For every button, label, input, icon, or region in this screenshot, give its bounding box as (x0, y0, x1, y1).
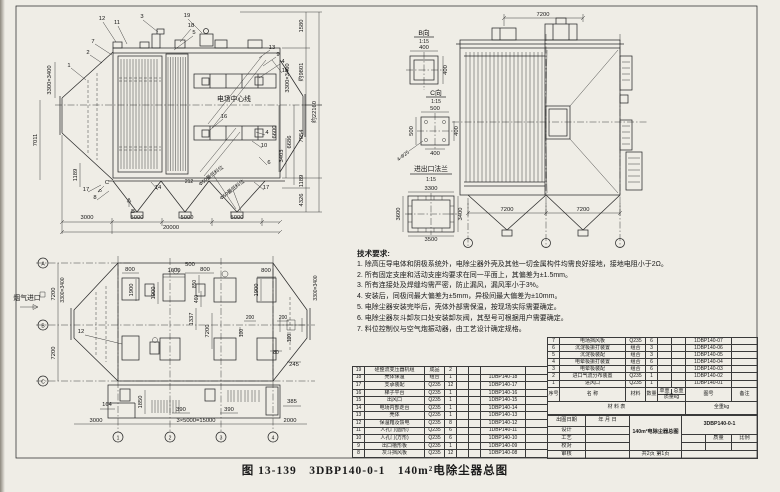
cell-code: 1DBP140-01 (686, 380, 732, 387)
cell-code: 1DBP140-08 (481, 450, 526, 458)
cell-empty (672, 359, 686, 366)
cell-empty (469, 374, 481, 382)
cell-material: Q235 (425, 382, 445, 390)
cell-empty (457, 435, 469, 443)
cell-name: 灰斗挡风板 (365, 450, 425, 458)
cell-empty (469, 450, 481, 458)
parts-table-right: 7 电场挡风板 Q235 6 1DBP140-07 6 沉淀极振打装置 组合 3… (547, 337, 758, 415)
cell-name: 电晕极装配 (560, 366, 626, 373)
callout: 6 (267, 160, 270, 166)
cell-material: Q235 (425, 404, 445, 412)
cell-empty (469, 404, 481, 412)
parts-row: 8 灰斗挡风板 Q235 12 1DBP140-08 (353, 450, 548, 458)
cell-material: 组合 (626, 366, 646, 373)
header-material: 材料 (626, 387, 646, 401)
cell-code: 1DBP140-03 (686, 366, 732, 373)
cell-qty: 6 (646, 366, 658, 373)
header-name: 名 称 (560, 387, 626, 401)
cell-no: 10 (353, 435, 365, 443)
dim-label: 390 (224, 407, 234, 413)
cell-empty (658, 338, 672, 345)
cell-no: 4 (548, 359, 560, 366)
tech-requirement-item: 1. 除高压导电体和阴极系统外，电除尘器外壳及其他一切金属构件均需良好接地，接地… (357, 260, 755, 271)
cell-empty (526, 427, 548, 435)
cell-empty (658, 366, 672, 373)
parts-row: 9 出口槽形板 Q235 1 1DBP140-09 (353, 442, 548, 450)
parts-table-left: 19 硅整流变压器机组 成品 2 18 壳体保温 组合 1 1DBP140-18… (352, 366, 548, 458)
detail-title: C向 (430, 88, 442, 97)
cell-name: 硅整流变压器机组 (365, 367, 425, 375)
cell-empty (526, 412, 548, 420)
photo-edge-shadow (0, 0, 5, 492)
tech-requirement-item: 6. 电除尘器灰斗卸灰口处安装卸灰阀，其型号可根据用户需要确定。 (357, 314, 755, 325)
cell-name: 保温箱及馈电 (365, 420, 425, 428)
tech-requirements-list: 1. 除高压导电体和阴极系统外，电除尘器外壳及其他一切金属构件均需良好接地，接地… (357, 260, 755, 336)
dim-label: 3500 (425, 237, 438, 243)
tech-requirement-item: 7. 料位控制仪与空气炮振动器，由工艺设计确定规格。 (357, 325, 755, 336)
cell-empty (457, 397, 469, 405)
callout: 2 (86, 50, 89, 56)
callout: 13 (269, 45, 275, 51)
dim-label: 385 (287, 399, 297, 405)
dim-label: 7200 (51, 288, 57, 301)
cell-name: 电晕极振打装置 (560, 359, 626, 366)
callout: 3 (140, 14, 143, 20)
cell-no: 14 (353, 404, 365, 412)
cell-empty (469, 412, 481, 420)
cell-empty (658, 345, 672, 352)
dim-label: 1337 (189, 313, 195, 326)
header-code: 图号 (686, 387, 732, 401)
cell-no: 15 (353, 397, 365, 405)
axis-label: A (41, 262, 45, 268)
cell-qty: 3 (646, 345, 658, 352)
axis-label: 4 (272, 436, 275, 442)
cell-no: 3 (548, 366, 560, 373)
cell-empty (457, 442, 469, 450)
cell-material: Q235 (425, 442, 445, 450)
technical-requirements: 技术要求: 1. 除高压导电体和阴极系统外，电除尘器外壳及其他一切金属构件均需良… (357, 249, 755, 335)
figure-caption: 图 13-139 3DBP140-0-1 140m²电除尘器总图 (160, 462, 590, 478)
cell-empty (469, 382, 481, 390)
cell-remark (732, 366, 758, 373)
tech-requirements-title: 技术要求: (357, 249, 755, 260)
dim-label: 500 (185, 262, 195, 268)
parts-row: 10 人孔门(方形) Q235 6 1DBP140-10 (353, 435, 548, 443)
cell-name: 梯子平台 (365, 389, 425, 397)
parts-row: 3 电晕极装配 组合 6 1DBP140-03 (548, 366, 758, 373)
cell-empty (658, 380, 672, 387)
callout: 18 (188, 23, 194, 29)
mass-label: 质量 (706, 435, 732, 443)
cell-code: 1DBP140-02 (686, 373, 732, 380)
cell-material: Q235 (425, 389, 445, 397)
dim-label: 400 (430, 151, 440, 157)
dim-label: 3600 (396, 208, 402, 221)
dim-label: 6600 (272, 126, 278, 139)
cell-qty: 1 (646, 380, 658, 387)
cell-code: 1DBP140-14 (481, 404, 526, 412)
drawing-sheet: { "page": {"caption": "图 13-139 3DBP140-… (0, 0, 780, 492)
dim-label: 7011 (33, 134, 39, 146)
title-block: 出图日期 年 月 日 140m²电除尘器总图 3DBP140-0-1 设计 工艺… (547, 415, 758, 459)
total-weight-label: 全重kg (686, 401, 758, 414)
callout: 9 (276, 52, 279, 58)
tech-requirement-item: 5. 电除尘器安装完毕后，壳体外部需保温，按现场实际需要确定。 (357, 303, 755, 314)
gas-inlet-label: 烟气进口 (13, 293, 40, 302)
cell-code: 1DBP140-12 (481, 420, 526, 428)
dim-label: 约9801 (297, 63, 305, 82)
cell-material: 组合 (626, 352, 646, 359)
cell-no: 13 (353, 412, 365, 420)
cell-no: 6 (548, 345, 560, 352)
dim-label: 7054 (299, 129, 305, 143)
center-line-label: 电场中心线 (217, 94, 251, 103)
cell-material: Q235 (425, 420, 445, 428)
cell-qty: 6 (646, 359, 658, 366)
parts-row: 16 梯子平台 Q235 1 1DBP140-16 (353, 389, 548, 397)
role-label: 设计 (548, 427, 586, 435)
dim-label: 5000 (231, 215, 244, 221)
axis-label: B (41, 324, 45, 330)
parts-row: 18 壳体保温 组合 1 1DBP140-18 (353, 374, 548, 382)
dim-label: 100 (287, 334, 293, 343)
cell-material: Q235 (425, 412, 445, 420)
cell-name: 沉淀极振打装置 (560, 345, 626, 352)
cell-qty: 1 (646, 373, 658, 380)
cell-empty (672, 345, 686, 352)
cell-name: 壳体 (365, 412, 425, 420)
cell-qty: 1 (445, 374, 457, 382)
parts-row: 2 进口气流分布装置 Q235 1 1DBP140-02 (548, 373, 758, 380)
cell-name: 沉淀极装配 (560, 352, 626, 359)
dim-label: 164 (102, 402, 112, 408)
front-view-linework (452, 18, 648, 248)
cell-code: 1DBP140-05 (686, 352, 732, 359)
cell-remark (732, 338, 758, 345)
cell-no: 9 (353, 442, 365, 450)
cell-remark (732, 373, 758, 380)
dim-label: 4-Φ25 (396, 149, 411, 162)
cell-qty: 1 (445, 397, 457, 405)
parts-row: 7 电场挡风板 Q235 6 1DBP140-07 (548, 338, 758, 345)
cell-name: 出口槽形板 (365, 442, 425, 450)
cell-no: 1 (548, 380, 560, 387)
cell-code: 1DBP140-07 (686, 338, 732, 345)
cell-empty (457, 420, 469, 428)
dim-label: 3000 (81, 215, 94, 221)
empty-cell (682, 435, 706, 443)
cell-empty (469, 442, 481, 450)
dim-label: 1189 (299, 175, 305, 187)
drawing-title: 140m²电除尘器总图 (630, 416, 682, 451)
callout: 12 (78, 329, 84, 335)
cell-empty (672, 366, 686, 373)
callout: 16 (221, 114, 227, 120)
cell-no: 16 (353, 389, 365, 397)
detail-title: 进出口法兰 (414, 164, 448, 173)
cell-empty (457, 412, 469, 420)
role-label: 校对 (548, 443, 586, 451)
cell-no: 12 (353, 420, 365, 428)
cell-name: 电场内部走台 (365, 404, 425, 412)
cell-qty: 12 (445, 450, 457, 458)
parts-row: 6 沉淀极振打装置 组合 3 1DBP140-06 (548, 345, 758, 352)
cell-code: 1DBP140-09 (481, 442, 526, 450)
callout: 4 (265, 130, 269, 136)
dim-label: 1900 (129, 284, 135, 297)
detail-scale: 1:15 (426, 177, 436, 183)
cell-qty: 6 (445, 435, 457, 443)
dim-label: 7200 (577, 207, 590, 213)
dim-label: 7200 (51, 347, 57, 360)
cell-code: 1DBP140-10 (481, 435, 526, 443)
cell-empty (457, 389, 469, 397)
cell-material: 成品 (425, 367, 445, 375)
cell-name: 进风口 (560, 380, 626, 387)
empty-cell (682, 451, 758, 459)
cell-name: 人孔门(方形) (365, 435, 425, 443)
header-remark: 备注 (732, 387, 758, 401)
callout: 7 (91, 39, 94, 45)
dim-label: 7200 (205, 325, 211, 338)
cell-no: 18 (353, 374, 365, 382)
cell-no: 2 (548, 373, 560, 380)
cell-empty (526, 389, 548, 397)
dim-label: 500 (409, 126, 415, 136)
cell-material: Q235 (626, 380, 646, 387)
dim-label: 3×5000=15000 (176, 418, 215, 424)
cell-name: 电场挡风板 (560, 338, 626, 345)
cell-no: 11 (353, 427, 365, 435)
dim-label: 3000 (90, 418, 103, 424)
callout: 8 (93, 195, 96, 201)
dim-label: 3403 (279, 150, 285, 163)
dim-label: 2000 (284, 418, 297, 424)
header-mass: 质量kg (658, 395, 685, 400)
cell-material: 组合 (425, 374, 445, 382)
dim-label: 3300×3400 (313, 275, 319, 300)
cell-empty (526, 450, 548, 458)
cell-empty (469, 420, 481, 428)
dim-label: 1900 (254, 284, 260, 297)
parts-row: 19 硅整流变压器机组 成品 2 (353, 367, 548, 375)
cell-name: 支承装配 (365, 382, 425, 390)
header-qty: 数量 (646, 387, 658, 401)
dim-label: 1189 (73, 169, 79, 181)
dim-label: 7200 (501, 207, 514, 213)
cell-empty (526, 397, 548, 405)
dim-label: 3300×3400 (47, 65, 53, 94)
page-count: 共2页 第1页 (630, 451, 682, 459)
dim-label: 约22160 (310, 101, 318, 123)
cell-empty (672, 352, 686, 359)
cell-name: 人孔门(圆形) (365, 427, 425, 435)
cell-remark (732, 380, 758, 387)
axis-label: 2 (169, 436, 172, 442)
cell-empty (526, 442, 548, 450)
cell-qty: 6 (646, 338, 658, 345)
cell-empty (658, 373, 672, 380)
cell-empty (672, 338, 686, 345)
cell-empty (672, 373, 686, 380)
callout: 10 (261, 143, 267, 149)
parts-row: 4 电晕极振打装置 组合 6 1DBP140-04 (548, 359, 758, 366)
dim-label: 100 (239, 329, 245, 338)
cell-empty (658, 359, 672, 366)
cell-material: Q235 (425, 397, 445, 405)
tech-requirement-item: 2. 所有固定支座和活动支座均要求在同一平面上，其偏差为±1.5mm。 (357, 271, 755, 282)
dim-label: 1900 (151, 287, 157, 300)
cell-empty (526, 382, 548, 390)
callout: 12 (99, 16, 105, 22)
cell-qty: 1 (445, 442, 457, 450)
signature-cell (586, 435, 630, 443)
cell-code: 1DBP140-15 (481, 397, 526, 405)
axis-label: C (41, 380, 45, 386)
axis-label: 1 (117, 436, 120, 442)
cell-material: Q235 (626, 373, 646, 380)
dim-label: 4326 (299, 194, 305, 207)
cell-empty (526, 404, 548, 412)
dim-label: 800 (200, 267, 210, 273)
dim-label: 3400 (458, 208, 464, 221)
cell-empty (658, 352, 672, 359)
scale-label: 比例 (732, 435, 758, 443)
axis-label: 3 (220, 436, 223, 442)
cell-qty: 2 (445, 367, 457, 375)
cell-qty: 3 (646, 352, 658, 359)
cell-empty (469, 397, 481, 405)
view-arrow-label: C (105, 180, 109, 186)
cell-material: Q235 (626, 338, 646, 345)
dim-label: 5000 (131, 215, 144, 221)
cell-empty (672, 380, 686, 387)
drawing-number: 3DBP140-0-1 (682, 416, 758, 435)
callout: 11 (114, 20, 120, 26)
cell-empty (457, 427, 469, 435)
cell-qty: 6 (445, 427, 457, 435)
callout: 17 (83, 187, 89, 193)
parts-row: 15 出风口 Q235 1 1DBP140-15 (353, 397, 548, 405)
parts-row: 13 壳体 Q235 1 1DBP140-13 (353, 412, 548, 420)
cell-code: 1DBP140-16 (481, 389, 526, 397)
cell-empty (526, 420, 548, 428)
cell-code: 1DBP140-04 (686, 359, 732, 366)
detail-title: B向 (418, 28, 430, 37)
callout: 19 (184, 13, 190, 19)
mass-value (706, 443, 732, 451)
cell-material: Q235 (425, 427, 445, 435)
cell-empty (526, 367, 548, 375)
dim-label: 400 (454, 126, 460, 136)
dim-label: 200 (279, 315, 288, 321)
dim-label: 1600 (168, 268, 181, 274)
tech-requirement-item: 4. 安装后，同极间最大偏差为±5mm，异极间最大偏差为±10mm。 (357, 292, 755, 303)
dim-label: 5000 (181, 215, 194, 221)
dim-label: 800 (261, 268, 271, 274)
dim-label: 400 (443, 65, 449, 75)
cell-no: 17 (353, 382, 365, 390)
parts-table-header: 序号 名 称 材料 数量 单重总重 质量kg 图号 备注 材 料 表 全重kg (548, 387, 758, 414)
cell-no: 19 (353, 367, 365, 375)
dim-label: 212 (185, 179, 194, 185)
cell-material: Q235 (425, 450, 445, 458)
cell-no: 5 (548, 352, 560, 359)
dim-label: 390 (176, 407, 186, 413)
cell-remark (732, 352, 758, 359)
dim-label: 3300 (425, 186, 438, 192)
parts-row: 12 保温箱及馈电 Q235 8 1DBP140-12 (353, 420, 548, 428)
dim-label: 3300×3400 (285, 63, 291, 92)
dim-label: 800 (125, 267, 135, 273)
role-label: 工艺 (548, 435, 586, 443)
cell-no: 8 (353, 450, 365, 458)
cell-code: 1DBP140-13 (481, 412, 526, 420)
cell-remark (732, 345, 758, 352)
callout: 1 (67, 63, 70, 69)
dim-label: 20000 (163, 225, 179, 231)
date-value: 年 月 日 (586, 416, 630, 427)
dim-label: 80 (273, 350, 279, 356)
cell-name: 出风口 (365, 397, 425, 405)
cell-name: 进口气流分布装置 (560, 373, 626, 380)
cell-empty (526, 435, 548, 443)
signature-cell (586, 451, 630, 459)
dim-label: 500 (430, 106, 440, 112)
parts-row: 17 支承装配 Q235 12 1DBP140-17 (353, 382, 548, 390)
cell-code: 1DBP140-11 (481, 427, 526, 435)
header-no: 序号 (548, 387, 560, 401)
scale-value (732, 443, 758, 451)
dim-label: 460 (194, 295, 200, 304)
cell-code: 1DBP140-17 (481, 382, 526, 390)
date-label: 出图日期 (548, 416, 586, 427)
side-view-linework (55, 29, 322, 219)
parts-row: 1 进风口 Q235 1 1DBP140-01 (548, 380, 758, 387)
signature-cell (586, 443, 630, 451)
parts-row: 14 电场内部走台 Q235 1 1DBP140-14 (353, 404, 548, 412)
dim-label: 3300×3400 (60, 277, 66, 302)
callout: 14 (155, 185, 162, 191)
cell-empty (457, 450, 469, 458)
callout: 17 (263, 185, 269, 191)
cell-no: 7 (548, 338, 560, 345)
cell-empty (469, 435, 481, 443)
cell-qty: 12 (445, 382, 457, 390)
dim-label: 850 (192, 280, 198, 289)
parts-row: 5 沉淀极装配 组合 3 1DBP140-05 (548, 352, 758, 359)
cell-code: 1DBP140-18 (481, 374, 526, 382)
dim-label: 245 (289, 362, 299, 368)
dim-label: 200 (246, 315, 255, 321)
cell-empty (469, 389, 481, 397)
dim-label: 6686 (287, 136, 293, 149)
cell-qty: 8 (445, 420, 457, 428)
cell-empty (526, 374, 548, 382)
dim-label: 1580 (299, 20, 305, 33)
detail-scale: 1:15 (431, 99, 441, 105)
material-list-label: 材 料 表 (548, 401, 686, 414)
empty-cell (682, 443, 706, 451)
cell-material: 组合 (626, 359, 646, 366)
cell-name: 壳体保温 (365, 374, 425, 382)
signature-cell (586, 427, 630, 435)
cell-qty: 1 (445, 389, 457, 397)
cell-code (481, 367, 526, 375)
cell-empty (457, 404, 469, 412)
cell-empty (457, 382, 469, 390)
